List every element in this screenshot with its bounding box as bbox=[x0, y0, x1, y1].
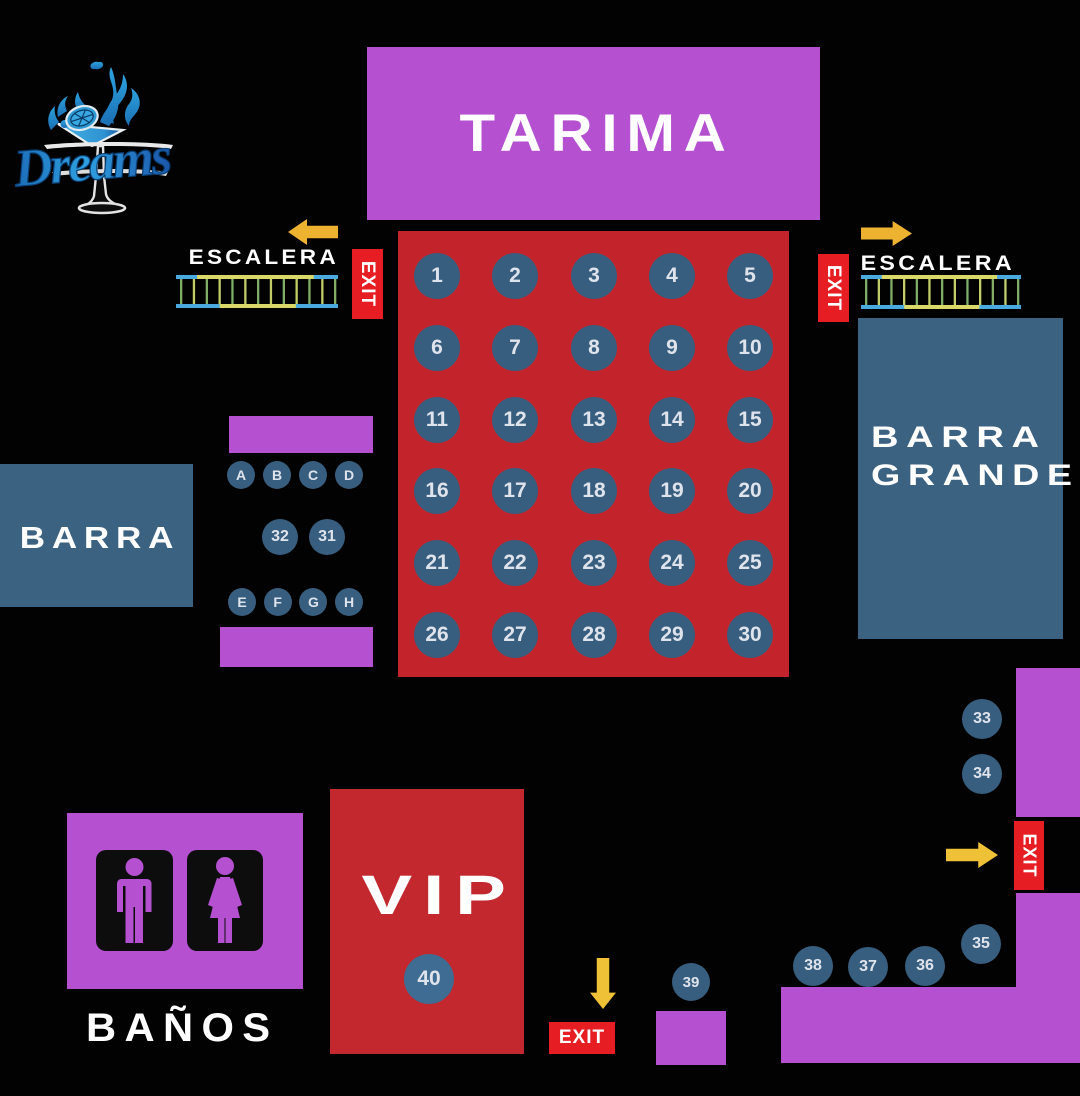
svg-text:Dreams: Dreams bbox=[11, 127, 174, 199]
